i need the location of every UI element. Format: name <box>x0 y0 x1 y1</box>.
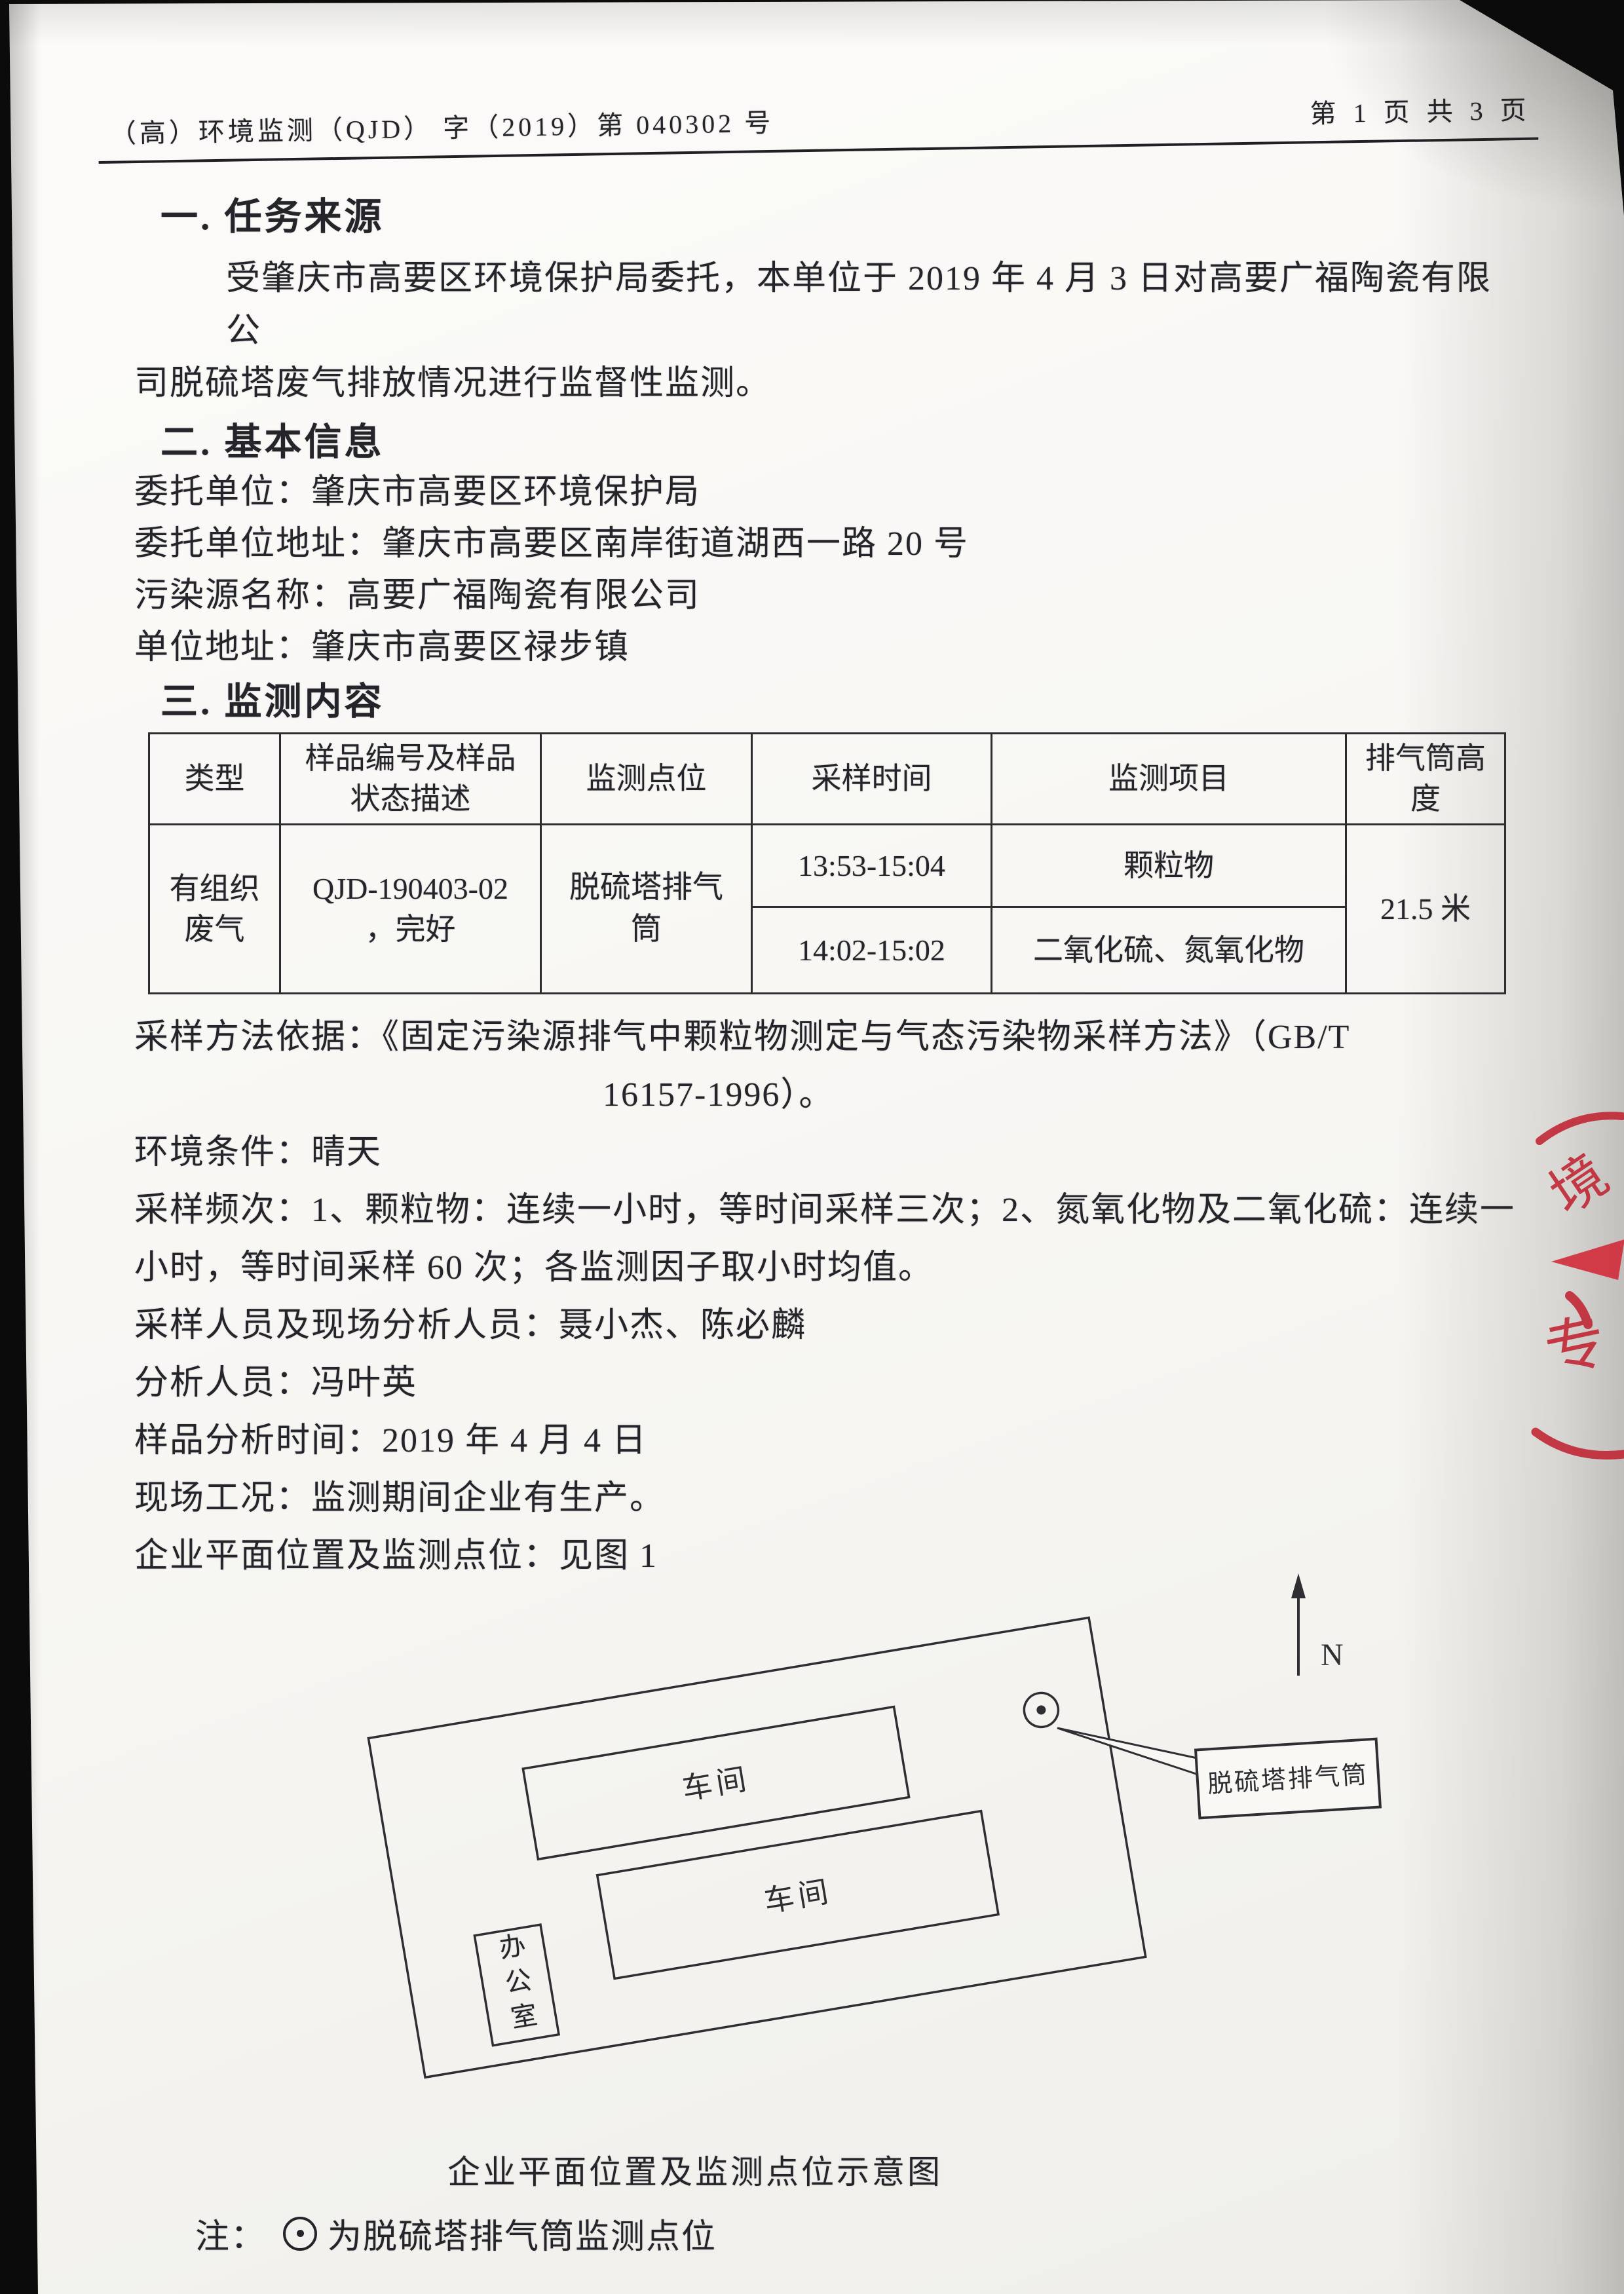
report-body: 一. 任务来源 受肇庆市高要区环境保护局委托，本单位于 2019 年 4 月 3… <box>111 194 1526 1573</box>
north-label: N <box>1321 1638 1344 1672</box>
line-sampling-frequency-1: 采样频次：1、颗粒物：连续一小时，等时间采样三次；2、氮氧化物及二氧化硫：连续一 <box>111 1194 1526 1228</box>
info-label: 单位地址： <box>134 629 311 666</box>
info-value: 高要广福陶瓷有限公司 <box>347 577 700 614</box>
col-header-time: 采样时间 <box>752 734 992 825</box>
site-layout-diagram: 车间 车间 N 脱硫塔排气筒 <box>0 1500 1624 2211</box>
monitoring-table: 类型 样品编号及样品状态描述 监测点位 采样时间 监测项目 排气筒高度 有组织废… <box>148 732 1506 994</box>
page-header: （高）环境监测（QJD） 字（2019）第 040302 号 第 1 页 共 3… <box>98 89 1538 164</box>
note-prefix: 注： <box>195 2209 266 2258</box>
cell-time-2: 14:02-15:02 <box>752 907 992 994</box>
report-code: （高）环境监测（QJD） 字（2019）第 040302 号 <box>109 102 774 151</box>
section-2-title: 二. 基本信息 <box>111 419 1526 466</box>
monitoring-point-legend-icon: ⊙ <box>283 2217 317 2251</box>
line-analyst: 分析人员：冯叶英 <box>111 1366 1526 1401</box>
col-header-point: 监测点位 <box>541 734 752 825</box>
table-header-row: 类型 样品编号及样品状态描述 监测点位 采样时间 监测项目 排气筒高度 <box>149 734 1505 825</box>
paper-sheet: （高）环境监测（QJD） 字（2019）第 040302 号 第 1 页 共 3… <box>0 0 1624 2294</box>
section-1-paragraph-line-1: 受肇庆市高要区环境保护局委托，本单位于 2019 年 4 月 3 日对高要广福陶… <box>111 253 1526 358</box>
seal-character-2: 专 <box>1539 1307 1612 1385</box>
monitoring-point-dot <box>1036 1704 1046 1715</box>
sample-id: QJD-190403-02 <box>294 869 527 909</box>
info-item-pollution-source: 污染源名称：高要广福陶瓷有限公司 <box>111 570 1526 622</box>
info-value: 肇庆市高要区南岸街道湖西一路 20 号 <box>382 525 969 563</box>
line-sampling-frequency-2: 小时，等时间采样 60 次；各监测因子取小时均值。 <box>111 1251 1526 1285</box>
cell-item-1: 颗粒物 <box>992 825 1346 907</box>
workshop-bottom-label: 车间 <box>762 1874 835 1918</box>
line-sampling-method-cont: 16157-1996）。 <box>111 1078 1526 1112</box>
figure-note: 注： ⊙ 为脱硫塔排气筒监测点位 <box>195 2209 717 2258</box>
info-label: 污染源名称： <box>134 577 347 614</box>
col-header-sample: 样品编号及样品状态描述 <box>280 734 541 825</box>
section-3-title: 三. 监测内容 <box>111 679 1526 726</box>
info-item-unit-address: 单位地址：肇庆市高要区禄步镇 <box>111 622 1526 673</box>
scanned-report-page: （高）环境监测（QJD） 字（2019）第 040302 号 第 1 页 共 3… <box>0 0 1624 2294</box>
table-row: 有组织废气 QJD-190403-02 ，完好 脱硫塔排气筒 13:53-15:… <box>149 825 1505 907</box>
line-sampling-personnel: 采样人员及现场分析人员：聂小杰、陈必麟 <box>111 1309 1526 1343</box>
note-text: 为脱硫塔排气筒监测点位 <box>328 2209 717 2258</box>
info-value: 肇庆市高要区环境保护局 <box>311 474 700 511</box>
line-analysis-time: 样品分析时间：2019 年 4 月 4 日 <box>111 1424 1526 1458</box>
line-environment-condition: 环境条件：晴天 <box>111 1136 1526 1170</box>
north-arrow-icon: N <box>1291 1573 1344 1676</box>
cell-time-1: 13:53-15:04 <box>752 825 992 907</box>
callout-arrow <box>1057 1728 1212 1779</box>
col-header-stack-height: 排气筒高度 <box>1346 734 1505 825</box>
info-label: 委托单位： <box>134 474 311 511</box>
col-header-type: 类型 <box>149 734 280 825</box>
section-1-paragraph-line-2: 司脱硫塔废气排放情况进行监督性监测。 <box>111 358 1526 410</box>
cell-type: 有组织废气 <box>149 825 280 994</box>
info-item-client: 委托单位：肇庆市高要区环境保护局 <box>111 466 1526 518</box>
info-item-client-address: 委托单位地址：肇庆市高要区南岸街道湖西一路 20 号 <box>111 518 1526 570</box>
cell-point: 脱硫塔排气筒 <box>541 825 752 994</box>
figure-caption: 企业平面位置及监测点位示意图 <box>0 2146 1390 2193</box>
cell-sample: QJD-190403-02 ，完好 <box>280 825 541 994</box>
cell-stack-height: 21.5 米 <box>1346 825 1505 994</box>
section-1-title: 一. 任务来源 <box>111 194 1526 241</box>
seal-star-point <box>1551 1239 1624 1280</box>
col-header-items: 监测项目 <box>992 734 1346 825</box>
cell-item-2: 二氧化硫、氮氧化物 <box>992 907 1346 994</box>
info-label: 委托单位地址： <box>134 525 382 563</box>
info-value: 肇庆市高要区禄步镇 <box>311 629 630 666</box>
seal-character-1: 境 <box>1539 1144 1619 1226</box>
workshop-top-label: 车间 <box>680 1762 753 1806</box>
red-seal-icon: 境 专 <box>1513 1100 1624 1467</box>
sample-state: ，完好 <box>294 909 527 950</box>
page-number: 第 1 页 共 3 页 <box>1310 89 1532 131</box>
line-sampling-method: 采样方法依据：《固定污染源排气中颗粒物测定与气态污染物采样方法》（GB/T <box>111 1021 1526 1055</box>
